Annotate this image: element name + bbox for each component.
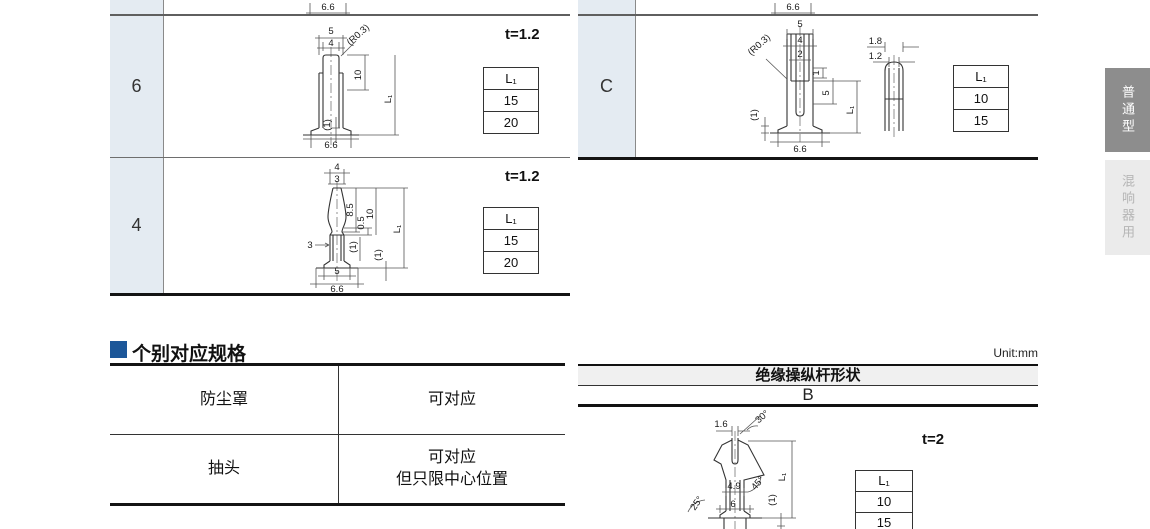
dim-label: 1.8: [869, 36, 882, 47]
spec-table: 防尘罩 可对应 抽头 可对应 但只限中心位置: [110, 363, 565, 506]
unit-label: Unit:mm: [938, 346, 1038, 360]
dim-label: L₁: [383, 95, 394, 104]
thickness-label: t=2: [922, 431, 944, 448]
side-tab-label: 普通型: [1118, 85, 1137, 136]
l1-value: 15: [484, 89, 538, 111]
l1-table: L₁ 15 20: [483, 67, 539, 134]
spec-name: 抽头: [110, 435, 338, 503]
dim-label: 1.6: [714, 419, 727, 430]
dim-label: (R0.3): [345, 22, 372, 48]
dim-label: 1: [811, 70, 822, 75]
dim-label: 6.6: [324, 140, 337, 151]
table-bottom-border: [578, 157, 1038, 160]
row-label-4: 4: [110, 157, 163, 293]
dim-label: (1): [749, 109, 760, 121]
dim-label: 5: [334, 266, 339, 277]
dim-label: 6.6: [330, 284, 343, 293]
side-tab-reverb-type[interactable]: 混响器用: [1105, 160, 1150, 255]
lever-variant-label: B: [578, 386, 1038, 407]
dim-label: (1): [767, 494, 778, 506]
dim-label: 5: [797, 19, 802, 30]
dim-label: (1): [322, 119, 333, 131]
spec-name: 防尘罩: [110, 366, 338, 434]
l1-value: 10: [954, 87, 1008, 109]
thickness-label: t=1.2: [505, 168, 540, 185]
dim-label: 8.5: [345, 203, 356, 216]
l1-value: 15: [856, 512, 912, 529]
row-label-6: 6: [110, 15, 163, 157]
dim-label: 4.9: [727, 481, 740, 492]
spec-value: 可对应: [339, 366, 565, 434]
dim-label: 45°: [749, 474, 767, 492]
l1-header: L₁: [484, 208, 538, 229]
l1-header: L₁: [484, 68, 538, 89]
dim-label: 25°: [688, 494, 705, 512]
dimension-lines: [761, 29, 919, 147]
cutoff-dimension-fragment: 6.6: [298, 0, 358, 15]
dim-label: (1): [373, 249, 384, 261]
l1-table: L₁ 10 15: [855, 470, 913, 529]
dim-label: 1.2: [869, 51, 882, 62]
dim-label: 3: [334, 174, 339, 185]
dim-label: 6: [730, 499, 735, 510]
l1-table: L₁ 10 15: [953, 65, 1009, 132]
section-title: 个别对应规格: [132, 339, 246, 366]
dim-label: L₁: [392, 225, 403, 234]
dim-label: 4: [334, 162, 339, 173]
page: 6 4 6.6 5 4 (R0.3) 10 L₁ (1) 6.6 t=1.2 L…: [0, 0, 1150, 529]
l1-header: L₁: [954, 66, 1008, 87]
dim-label: (1): [348, 241, 359, 253]
table-bottom-border: [110, 503, 565, 506]
row-label-C: C: [578, 15, 635, 157]
dim-label: 4: [797, 35, 802, 46]
dim-label: 2: [797, 49, 802, 60]
l1-table: L₁ 15 20: [483, 207, 539, 274]
section-marker-icon: [110, 341, 127, 358]
dim-label: 5: [328, 26, 333, 37]
dim-label: L₁: [777, 473, 788, 482]
dim-label: (R0.3): [746, 32, 773, 58]
side-tab-normal-type[interactable]: 普通型: [1105, 68, 1150, 152]
l1-value: 15: [484, 229, 538, 251]
thickness-label: t=1.2: [505, 26, 540, 43]
dim-label: 6.6: [321, 2, 334, 13]
dim-label: 10: [365, 209, 376, 220]
dim-label: 10: [353, 70, 364, 81]
dimension-lines: [688, 416, 796, 529]
lever-section-header: 绝缘操纵杆形状: [578, 364, 1038, 386]
l1-value: 10: [856, 491, 912, 512]
l1-header: L₁: [856, 471, 912, 491]
part-outline: [770, 34, 903, 133]
dim-label: 3: [307, 240, 312, 251]
l1-value: 15: [954, 109, 1008, 131]
spec-value: 可对应 但只限中心位置: [339, 435, 565, 503]
dim-label: 6.6: [793, 144, 806, 155]
dim-label: 6.6: [786, 2, 799, 13]
dim-label: 30°: [753, 408, 771, 426]
drawing-lever-B: 30° 1.6 4.9 45° 25° 6 L₁ (1): [578, 407, 1038, 529]
table-bottom-border: [110, 293, 570, 296]
dim-label: 4: [328, 38, 333, 49]
cutoff-dimension-fragment: 6.6: [763, 0, 823, 15]
side-tab-label: 混响器用: [1118, 174, 1137, 242]
l1-value: 20: [484, 111, 538, 133]
dim-label: L₁: [845, 106, 856, 115]
dim-label: 5: [821, 90, 832, 95]
l1-value: 20: [484, 251, 538, 273]
